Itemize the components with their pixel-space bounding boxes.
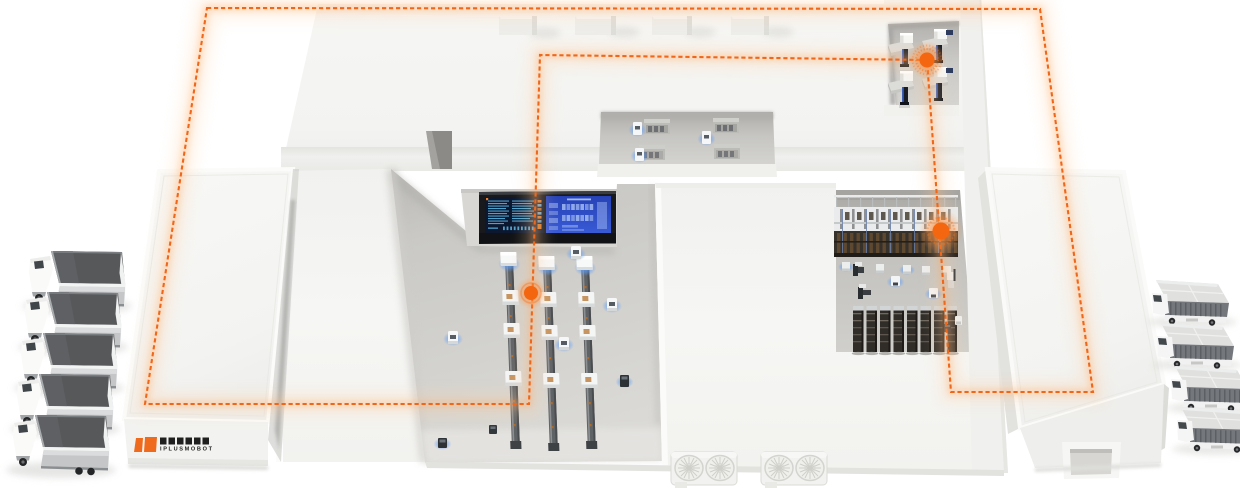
svg-text:IPLUSMOBOT: IPLUSMOBOT xyxy=(160,447,213,453)
